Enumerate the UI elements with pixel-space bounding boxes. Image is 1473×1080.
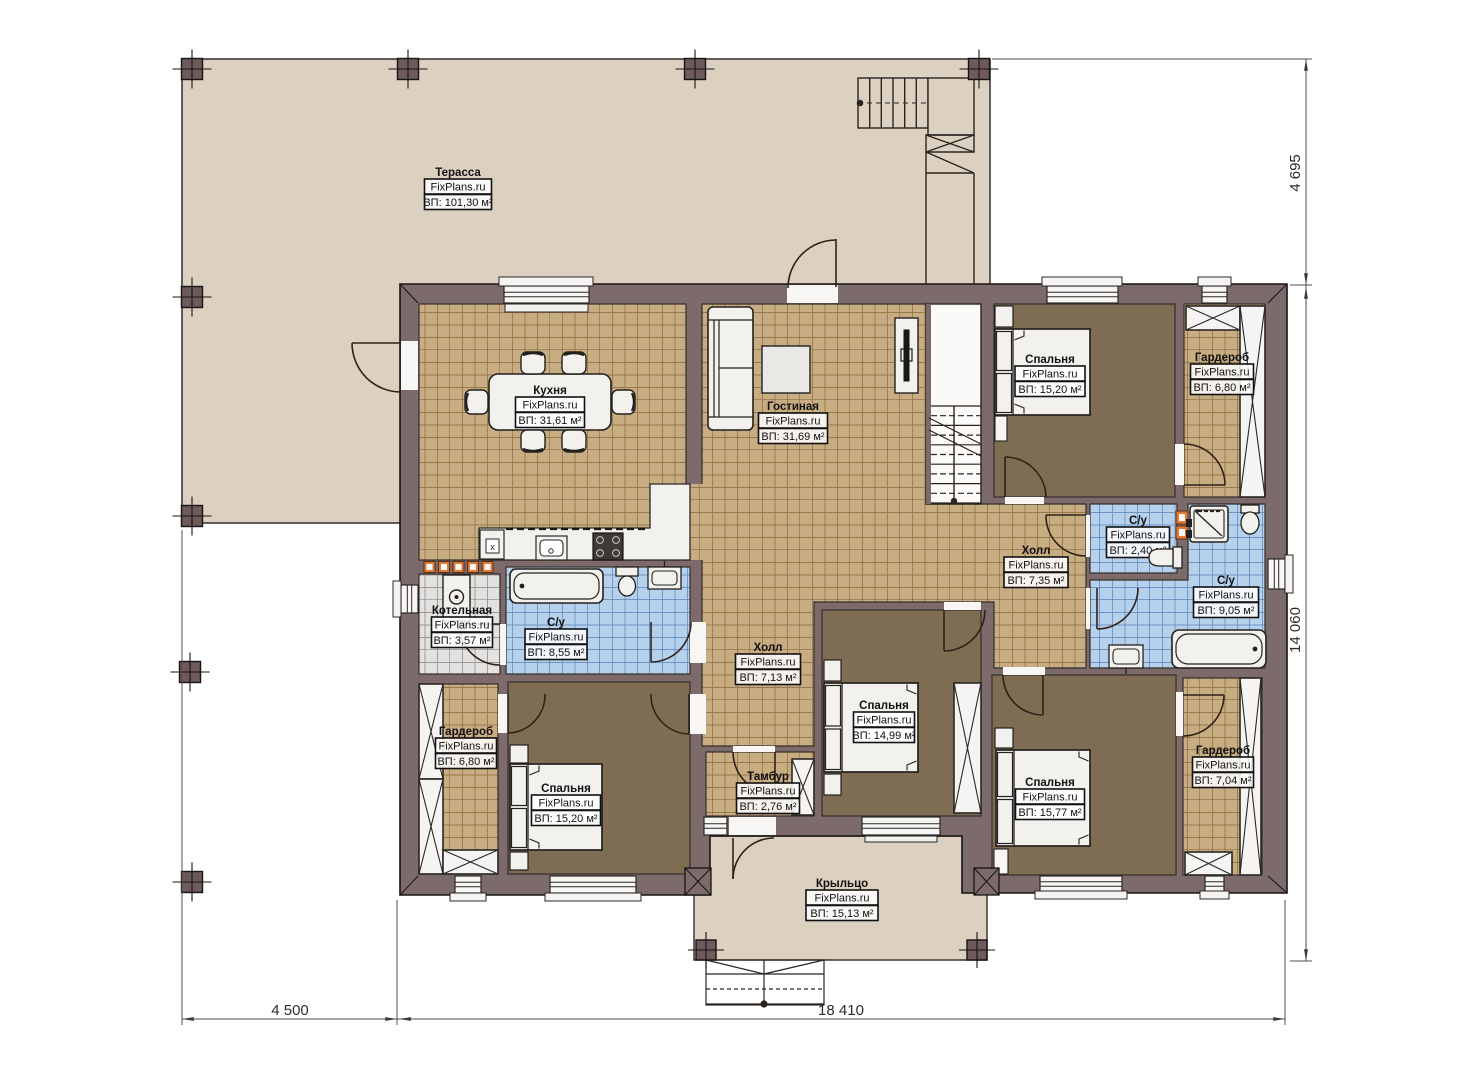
svg-text:FixPlans.ru: FixPlans.ru — [538, 798, 593, 810]
svg-text:ВП: 8,55 м²: ВП: 8,55 м² — [527, 647, 584, 659]
svg-text:ВП: 7,13 м²: ВП: 7,13 м² — [739, 672, 796, 684]
svg-text:FixPlans.ru: FixPlans.ru — [438, 741, 493, 753]
svg-text:Спальня: Спальня — [859, 700, 909, 712]
svg-text:FixPlans.ru: FixPlans.ru — [765, 416, 820, 428]
svg-text:ВП: 7,04 м²: ВП: 7,04 м² — [1194, 775, 1251, 787]
svg-text:Терасса: Терасса — [435, 167, 481, 179]
svg-text:FixPlans.ru: FixPlans.ru — [814, 893, 869, 905]
svg-text:Кухня: Кухня — [533, 385, 567, 397]
svg-text:FixPlans.ru: FixPlans.ru — [1195, 760, 1250, 772]
svg-text:14 060: 14 060 — [1287, 607, 1304, 653]
svg-text:ВП: 101,30 м²: ВП: 101,30 м² — [423, 197, 493, 209]
svg-text:С/у: С/у — [547, 617, 566, 629]
svg-text:ВП: 31,61 м²: ВП: 31,61 м² — [518, 415, 582, 427]
svg-text:С/у: С/у — [1129, 515, 1148, 527]
svg-text:Спальня: Спальня — [1025, 777, 1075, 789]
svg-text:FixPlans.ru: FixPlans.ru — [528, 632, 583, 644]
svg-text:FixPlans.ru: FixPlans.ru — [434, 620, 489, 632]
svg-text:FixPlans.ru: FixPlans.ru — [522, 400, 577, 412]
svg-text:4 500: 4 500 — [271, 1002, 309, 1019]
svg-text:Гардероб: Гардероб — [1196, 745, 1250, 757]
svg-text:18 410: 18 410 — [818, 1002, 864, 1019]
svg-text:ВП: 6,80 м²: ВП: 6,80 м² — [1193, 382, 1250, 394]
svg-text:FixPlans.ru: FixPlans.ru — [740, 657, 795, 669]
svg-text:FixPlans.ru: FixPlans.ru — [856, 715, 911, 727]
svg-text:FixPlans.ru: FixPlans.ru — [1022, 369, 1077, 381]
svg-text:ВП: 14,99 м²: ВП: 14,99 м² — [852, 730, 916, 742]
svg-text:FixPlans.ru: FixPlans.ru — [1008, 560, 1063, 572]
svg-text:Спальня: Спальня — [1025, 354, 1075, 366]
svg-text:ВП: 3,57 м²: ВП: 3,57 м² — [433, 635, 490, 647]
svg-text:FixPlans.ru: FixPlans.ru — [740, 786, 795, 798]
svg-text:FixPlans.ru: FixPlans.ru — [1022, 792, 1077, 804]
svg-text:ВП: 15,20 м²: ВП: 15,20 м² — [534, 813, 598, 825]
svg-text:ВП: 15,77 м²: ВП: 15,77 м² — [1018, 807, 1082, 819]
svg-text:Гардероб: Гардероб — [439, 726, 493, 738]
svg-text:С/у: С/у — [1217, 575, 1236, 587]
svg-text:FixPlans.ru: FixPlans.ru — [1110, 530, 1165, 542]
svg-text:FixPlans.ru: FixPlans.ru — [1198, 590, 1253, 602]
svg-text:ВП: 15,13 м²: ВП: 15,13 м² — [810, 908, 874, 920]
svg-text:Гардероб: Гардероб — [1195, 352, 1249, 364]
svg-text:ВП: 15,20 м²: ВП: 15,20 м² — [1018, 384, 1082, 396]
svg-text:Крыльцо: Крыльцо — [816, 878, 868, 890]
svg-text:Гостиная: Гостиная — [767, 401, 819, 413]
svg-text:x: x — [490, 542, 495, 552]
svg-text:Тамбур: Тамбур — [747, 771, 789, 783]
svg-text:ВП: 2,76 м²: ВП: 2,76 м² — [739, 801, 796, 813]
svg-text:ВП: 9,05 м²: ВП: 9,05 м² — [1197, 605, 1254, 617]
svg-text:FixPlans.ru: FixPlans.ru — [430, 182, 485, 194]
svg-text:ВП: 7,35 м²: ВП: 7,35 м² — [1007, 575, 1064, 587]
svg-text:Котельная: Котельная — [432, 605, 492, 617]
svg-text:Спальня: Спальня — [541, 783, 591, 795]
svg-text:ВП: 6,80 м²: ВП: 6,80 м² — [437, 756, 494, 768]
svg-text:Холл: Холл — [1022, 545, 1051, 557]
svg-text:Холл: Холл — [754, 642, 783, 654]
svg-text:FixPlans.ru: FixPlans.ru — [1194, 367, 1249, 379]
svg-text:ВП: 31,69 м²: ВП: 31,69 м² — [761, 431, 825, 443]
svg-text:4 695: 4 695 — [1287, 154, 1304, 192]
